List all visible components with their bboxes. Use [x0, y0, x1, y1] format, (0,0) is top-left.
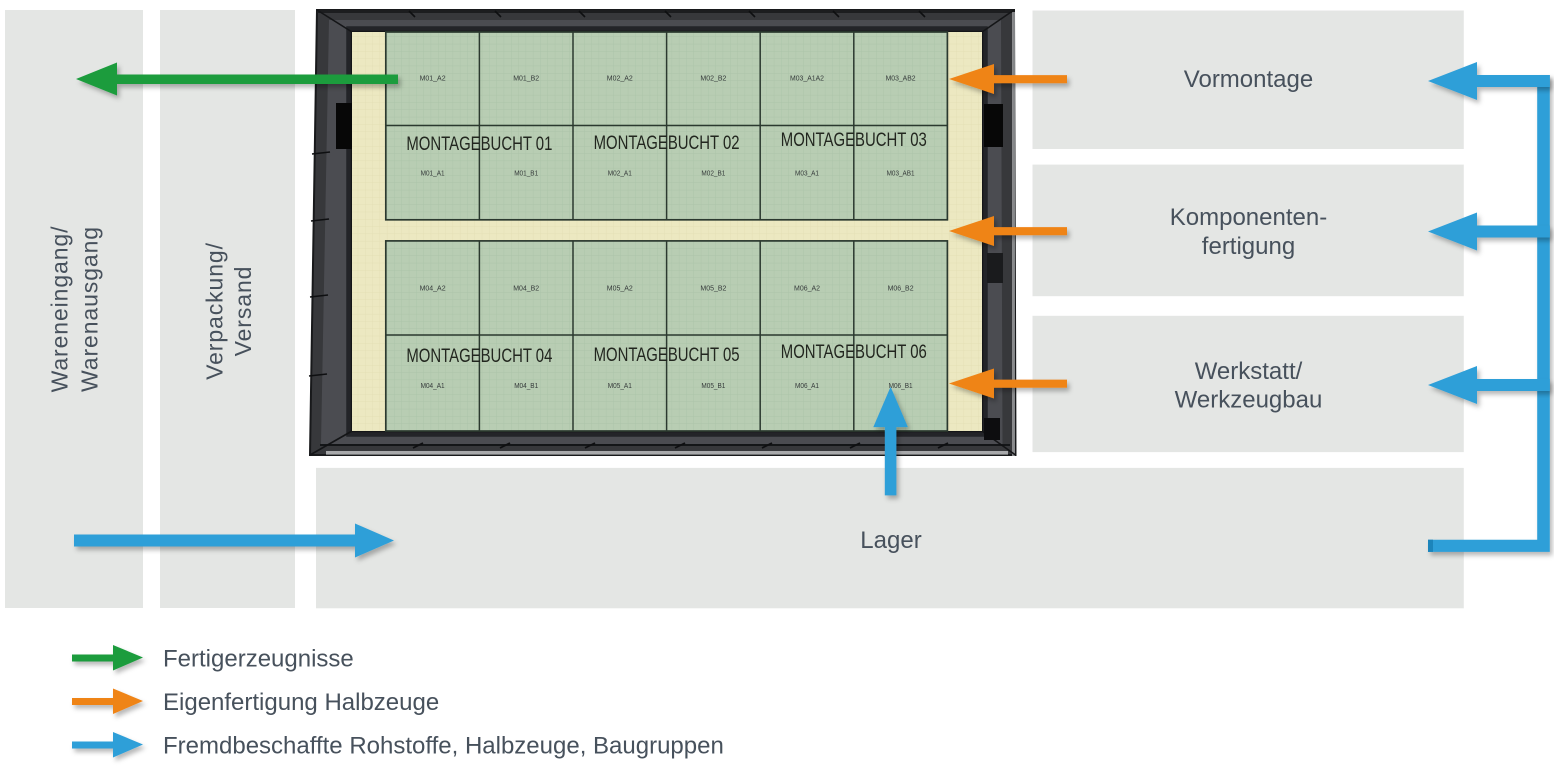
svg-text:M04_A2: M04_A2	[420, 284, 446, 293]
svg-text:M01_B2: M01_B2	[513, 74, 539, 83]
svg-text:Wareneingang/: Wareneingang/	[47, 226, 73, 393]
svg-text:M05_A2: M05_A2	[607, 284, 633, 293]
svg-text:MONTAGEBUCHT 05: MONTAGEBUCHT 05	[594, 345, 740, 366]
svg-text:Vormontage: Vormontage	[1184, 66, 1313, 93]
svg-text:fertigung: fertigung	[1202, 233, 1295, 260]
svg-text:Verpackung/: Verpackung/	[202, 242, 228, 380]
svg-text:Werkstatt/: Werkstatt/	[1195, 358, 1303, 385]
svg-text:M04_B1: M04_B1	[514, 381, 538, 390]
svg-text:M06_A1: M06_A1	[795, 381, 819, 390]
svg-text:M02_B2: M02_B2	[700, 74, 726, 83]
svg-text:Fremdbeschaffte Rohstoffe, Hal: Fremdbeschaffte Rohstoffe, Halbzeuge, Ba…	[163, 733, 724, 760]
svg-text:M05_B2: M05_B2	[700, 284, 726, 293]
svg-text:Warenausgang: Warenausgang	[77, 226, 103, 392]
svg-text:Werkzeugbau: Werkzeugbau	[1175, 387, 1323, 414]
svg-text:M02_A2: M02_A2	[607, 74, 633, 83]
svg-text:MONTAGEBUCHT 03: MONTAGEBUCHT 03	[781, 130, 927, 151]
svg-text:M05_B1: M05_B1	[701, 381, 725, 390]
svg-text:MONTAGEBUCHT 02: MONTAGEBUCHT 02	[594, 133, 740, 154]
svg-text:M06_B1: M06_B1	[889, 381, 913, 390]
svg-text:M01_A1: M01_A1	[421, 169, 445, 178]
svg-text:Fertigerzeugnisse: Fertigerzeugnisse	[163, 646, 354, 673]
svg-text:Komponenten-: Komponenten-	[1170, 204, 1327, 231]
svg-text:M03_A1: M03_A1	[795, 169, 819, 178]
svg-text:M01_B1: M01_B1	[514, 169, 538, 178]
svg-text:MONTAGEBUCHT 06: MONTAGEBUCHT 06	[781, 342, 927, 363]
svg-text:M03_AB1: M03_AB1	[887, 169, 915, 178]
svg-text:M02_B1: M02_B1	[701, 169, 725, 178]
svg-text:M06_B2: M06_B2	[888, 284, 914, 293]
svg-text:Eigenfertigung Halbzeuge: Eigenfertigung Halbzeuge	[163, 689, 439, 716]
svg-text:Versand: Versand	[230, 266, 256, 357]
svg-text:M03_A1A2: M03_A1A2	[790, 74, 824, 83]
svg-text:M04_A1: M04_A1	[421, 381, 445, 390]
svg-text:MONTAGEBUCHT 01: MONTAGEBUCHT 01	[406, 134, 552, 155]
svg-text:M02_A1: M02_A1	[608, 169, 632, 178]
svg-text:MONTAGEBUCHT 04: MONTAGEBUCHT 04	[406, 346, 552, 367]
svg-text:Lager: Lager	[860, 527, 921, 554]
svg-text:M03_AB2: M03_AB2	[886, 74, 916, 83]
svg-text:M04_B2: M04_B2	[513, 284, 539, 293]
svg-text:M06_A2: M06_A2	[794, 284, 820, 293]
svg-text:M05_A1: M05_A1	[608, 381, 632, 390]
svg-text:M01_A2: M01_A2	[420, 74, 446, 83]
